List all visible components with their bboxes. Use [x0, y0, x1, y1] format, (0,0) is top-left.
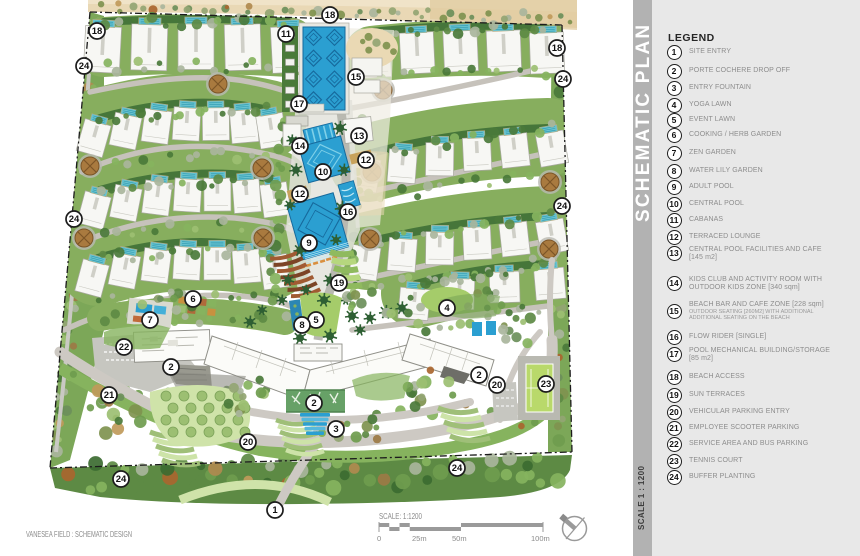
svg-text:0: 0 — [377, 534, 381, 543]
svg-text:2: 2 — [311, 398, 316, 409]
svg-text:19: 19 — [334, 278, 345, 289]
svg-text:12: 12 — [295, 189, 306, 200]
svg-text:11: 11 — [281, 29, 292, 40]
svg-text:18: 18 — [92, 26, 103, 37]
svg-text:18: 18 — [552, 43, 563, 54]
svg-text:50m: 50m — [452, 534, 467, 543]
svg-text:2: 2 — [168, 362, 173, 373]
svg-text:20: 20 — [243, 437, 254, 448]
svg-text:6: 6 — [190, 294, 195, 305]
svg-text:12: 12 — [361, 155, 372, 166]
svg-text:21: 21 — [104, 390, 115, 401]
svg-text:8: 8 — [299, 320, 304, 331]
svg-text:14: 14 — [295, 141, 306, 152]
svg-text:SCALE: 1:1200: SCALE: 1:1200 — [379, 512, 422, 521]
svg-text:24: 24 — [116, 474, 127, 485]
svg-text:5: 5 — [313, 315, 319, 326]
svg-text:17: 17 — [294, 99, 305, 110]
svg-text:7: 7 — [147, 315, 152, 326]
svg-text:16: 16 — [343, 207, 354, 218]
svg-text:13: 13 — [354, 131, 365, 142]
svg-text:9: 9 — [306, 238, 311, 249]
svg-text:15: 15 — [351, 72, 362, 83]
svg-text:24: 24 — [452, 463, 463, 474]
svg-text:23: 23 — [541, 379, 552, 390]
svg-text:24: 24 — [558, 74, 569, 85]
svg-text:2: 2 — [476, 370, 481, 381]
svg-text:VANESEA FIELD : SCHEMATIC DESI: VANESEA FIELD : SCHEMATIC DESIGN — [26, 530, 132, 539]
svg-text:100m: 100m — [531, 534, 550, 543]
svg-text:24: 24 — [69, 214, 80, 225]
svg-text:22: 22 — [119, 342, 130, 353]
svg-text:24: 24 — [557, 201, 568, 212]
svg-text:18: 18 — [325, 10, 336, 21]
svg-text:3: 3 — [333, 424, 338, 435]
svg-text:20: 20 — [492, 380, 503, 391]
svg-text:24: 24 — [79, 61, 90, 72]
svg-text:1: 1 — [272, 505, 278, 516]
svg-text:10: 10 — [318, 167, 329, 178]
svg-text:25m: 25m — [412, 534, 427, 543]
svg-text:4: 4 — [444, 303, 450, 314]
